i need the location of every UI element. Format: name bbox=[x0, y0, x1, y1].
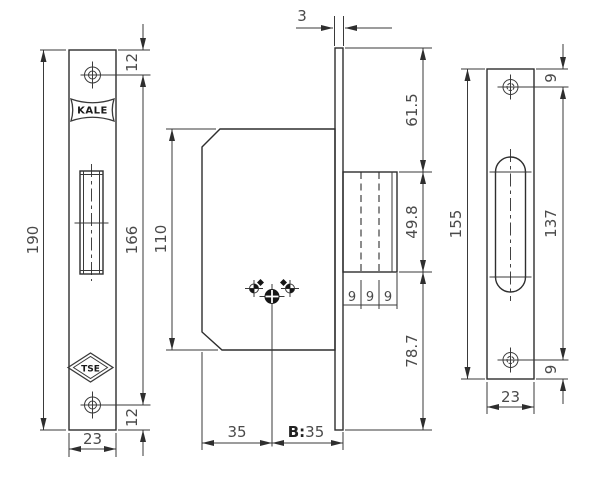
dim-label-strike-width: 23 bbox=[501, 388, 520, 406]
strike-plate-view: 155 9 137 9 23 bbox=[447, 44, 568, 414]
dim-strike-height: 155 bbox=[447, 69, 485, 379]
dim-label-strike-screw-bottom: 9 bbox=[542, 365, 560, 375]
dim-label-strike-screw-spacing: 137 bbox=[542, 209, 560, 238]
dim-case-height: 110 bbox=[152, 129, 218, 350]
lock-case-view: 9 9 9 bbox=[152, 7, 432, 450]
deadbolt-profile bbox=[343, 172, 397, 272]
dim-label-backset: 35 bbox=[227, 423, 246, 441]
dim-label-screw-bottom-offset: 12 bbox=[123, 408, 141, 427]
latch-slot bbox=[75, 164, 108, 281]
dim-faceplate-height: 190 bbox=[24, 50, 66, 430]
dim-label-screw-top-offset: 12 bbox=[123, 53, 141, 72]
dim-label-bolt-to-bottom: 78.7 bbox=[403, 334, 421, 367]
tse-logo: TSE bbox=[68, 353, 113, 382]
diamond-mark-icon bbox=[257, 279, 264, 286]
dim-label-faceplate-height: 190 bbox=[24, 226, 42, 255]
dim-label-bolt-height: 49.8 bbox=[403, 205, 421, 238]
dim-label-strike-height: 155 bbox=[447, 210, 465, 239]
dim-strike-width: 23 bbox=[487, 382, 534, 414]
dim-label-top-to-bolt: 61.5 bbox=[403, 93, 421, 126]
fixing-hole-mark-left-icon bbox=[246, 279, 265, 297]
kale-logo: KALE bbox=[71, 99, 114, 121]
dim-label-strike-screw-top: 9 bbox=[542, 73, 560, 83]
dim-label-faceplate-width: 23 bbox=[83, 430, 102, 448]
dim-label-case-height: 110 bbox=[152, 225, 170, 254]
case-body-outline bbox=[202, 129, 335, 350]
kale-logo-text: KALE bbox=[77, 106, 108, 117]
fixing-hole-mark-right-icon bbox=[280, 279, 299, 297]
dim-strike-screw-offsets: 9 137 9 bbox=[536, 44, 568, 404]
dim-label-bolt-step-2: 9 bbox=[366, 290, 374, 305]
dim-faceplate-thickness: 3 bbox=[296, 7, 392, 46]
dim-profile-column: 61.5 49.8 78.7 bbox=[345, 48, 432, 430]
dim-faceplate-screw-offsets: 12 166 12 bbox=[118, 24, 150, 456]
diamond-mark-icon bbox=[280, 279, 287, 286]
technical-drawing-canvas: KALE TSE 190 bbox=[0, 0, 600, 479]
faceplate-front-view: KALE TSE 190 bbox=[24, 24, 150, 457]
dim-bolt-steps: 9 9 9 bbox=[343, 273, 397, 309]
dim-faceplate-width: 23 bbox=[69, 430, 116, 457]
lock-technical-drawing-page: KALE TSE 190 bbox=[0, 0, 600, 479]
dim-label-bolt-step-3: 9 bbox=[384, 290, 392, 305]
tse-logo-text: TSE bbox=[81, 365, 100, 375]
dim-label-faceplate-thickness: 3 bbox=[297, 7, 307, 25]
hub-fixing-marks bbox=[246, 279, 299, 446]
dim-label-bolt-step-1: 9 bbox=[348, 290, 356, 305]
strike-slot bbox=[490, 149, 531, 301]
dim-label-screw-spacing: 166 bbox=[123, 226, 141, 255]
faceplate-edge-profile bbox=[335, 48, 343, 430]
dim-label-backset-b: B:35 bbox=[288, 423, 325, 441]
